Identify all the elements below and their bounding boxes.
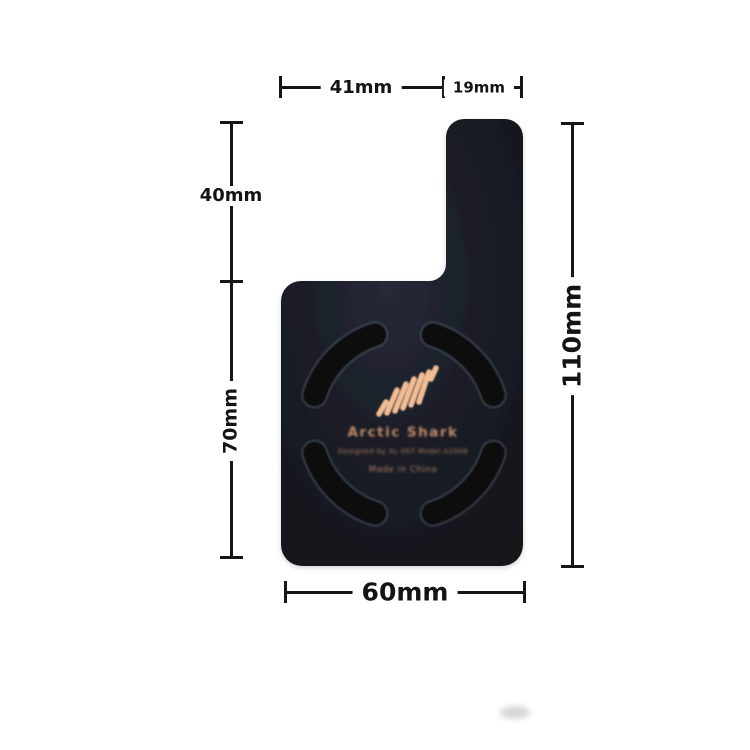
dim-label-70mm: 70mm	[221, 381, 242, 461]
dim-cap	[284, 581, 287, 603]
dim-cap	[520, 76, 523, 98]
brand-name: Arctic Shark	[348, 426, 459, 440]
dim-cap	[220, 280, 243, 283]
dim-cap	[279, 76, 282, 98]
dim-cap	[220, 121, 243, 124]
dim-cap	[523, 581, 526, 603]
dim-cap	[220, 556, 243, 559]
plate-body	[281, 119, 523, 566]
dim-label-110mm: 110mm	[559, 277, 586, 395]
dim-label-40mm: 40mm	[191, 186, 272, 206]
dim-cap	[561, 122, 584, 125]
faint-watermark	[500, 706, 530, 719]
dim-cap	[561, 565, 584, 568]
brand-subtitle: Designed by XL 007 Model A2008	[338, 449, 468, 456]
origin-text: Made in China	[369, 466, 437, 475]
diagram-stage: Arctic Shark Designed by XL 007 Model A2…	[0, 0, 750, 750]
dim-label-19mm: 19mm	[444, 80, 514, 97]
product-plate-illustration	[0, 0, 750, 750]
dim-label-60mm: 60mm	[353, 579, 458, 606]
dim-label-41mm: 41mm	[321, 78, 402, 98]
